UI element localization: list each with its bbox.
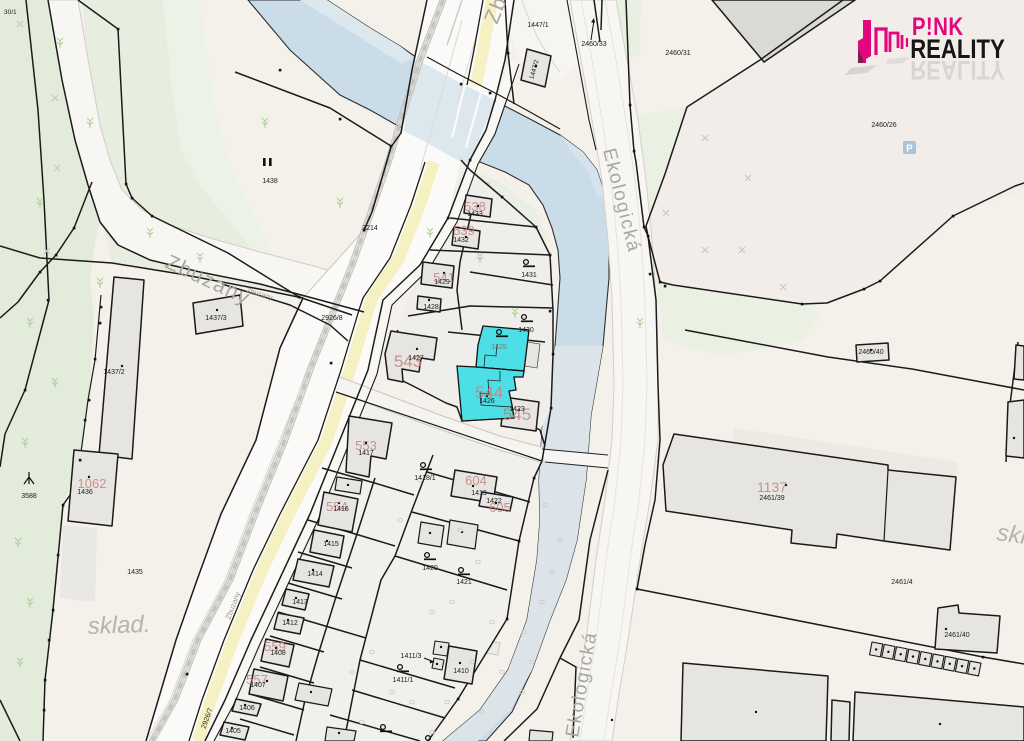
svg-text:2926/8: 2926/8 (321, 315, 343, 322)
svg-text:1411/3: 1411/3 (401, 653, 422, 660)
svg-text:1411/1: 1411/1 (393, 677, 414, 684)
svg-text:1406: 1406 (239, 705, 255, 712)
svg-text:1412: 1412 (282, 620, 298, 627)
svg-text:1426: 1426 (479, 398, 495, 405)
svg-text:1437/3: 1437/3 (205, 315, 227, 322)
svg-text:1419: 1419 (471, 490, 487, 497)
svg-text:1417: 1417 (358, 450, 374, 457)
svg-text:2460/26: 2460/26 (871, 122, 896, 129)
svg-text:REALITY: REALITY (910, 54, 1005, 84)
svg-text:1421: 1421 (456, 579, 472, 586)
svg-text:1422: 1422 (486, 498, 502, 505)
svg-text:1413: 1413 (292, 599, 308, 606)
svg-text:3588: 3588 (21, 493, 37, 500)
svg-text:1433: 1433 (467, 211, 483, 218)
svg-text:1437/2: 1437/2 (103, 369, 125, 376)
svg-text:1410: 1410 (453, 668, 469, 675)
svg-text:2461/39: 2461/39 (759, 495, 784, 502)
svg-text:3214: 3214 (362, 225, 378, 232)
svg-text:sklad.: sklad. (87, 611, 151, 640)
svg-text:2460/31: 2460/31 (665, 50, 690, 57)
svg-text:1423: 1423 (509, 406, 525, 413)
svg-text:1407: 1407 (250, 682, 266, 689)
svg-text:1416: 1416 (333, 506, 349, 513)
svg-text:1428: 1428 (423, 304, 439, 311)
svg-text:1137: 1137 (757, 479, 787, 495)
svg-text:2460/40: 2460/40 (858, 349, 883, 356)
svg-text:2461/4: 2461/4 (891, 579, 913, 586)
svg-text:1405: 1405 (225, 728, 241, 735)
svg-text:1438: 1438 (262, 178, 278, 185)
svg-text:1427: 1427 (408, 355, 424, 362)
svg-text:1447/1: 1447/1 (527, 22, 549, 29)
svg-text:2460/33: 2460/33 (581, 41, 606, 48)
svg-text:P: P (906, 144, 913, 155)
svg-text:1425: 1425 (491, 344, 507, 351)
svg-text:604: 604 (465, 473, 487, 488)
svg-text:1415: 1415 (323, 541, 339, 548)
svg-text:30/1: 30/1 (4, 9, 17, 16)
svg-text:1414: 1414 (307, 571, 323, 578)
svg-text:1431: 1431 (521, 272, 537, 279)
svg-text:539: 539 (453, 223, 475, 238)
svg-text:1420: 1420 (422, 565, 438, 572)
svg-text:1432: 1432 (453, 237, 469, 244)
svg-text:1408: 1408 (270, 650, 286, 657)
svg-text:1430: 1430 (518, 327, 534, 334)
svg-text:1429: 1429 (434, 279, 450, 286)
svg-text:2461/40: 2461/40 (944, 632, 969, 639)
svg-text:1436: 1436 (77, 489, 93, 496)
svg-text:1435: 1435 (127, 569, 143, 576)
svg-text:1418/1: 1418/1 (414, 475, 436, 482)
